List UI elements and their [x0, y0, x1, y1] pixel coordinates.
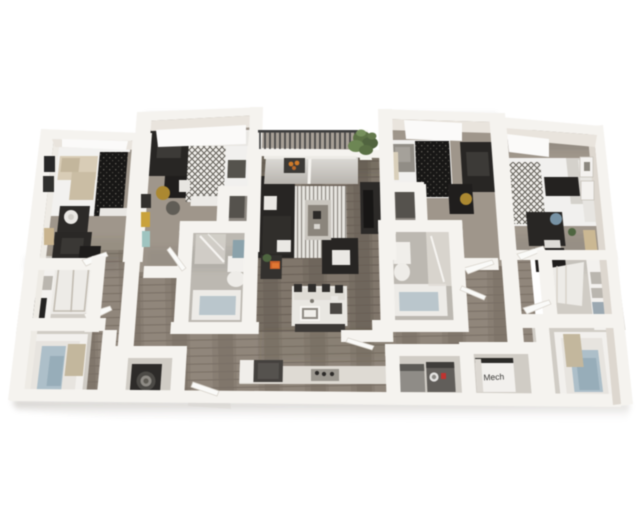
svg-text:Mech: Mech [483, 371, 505, 382]
